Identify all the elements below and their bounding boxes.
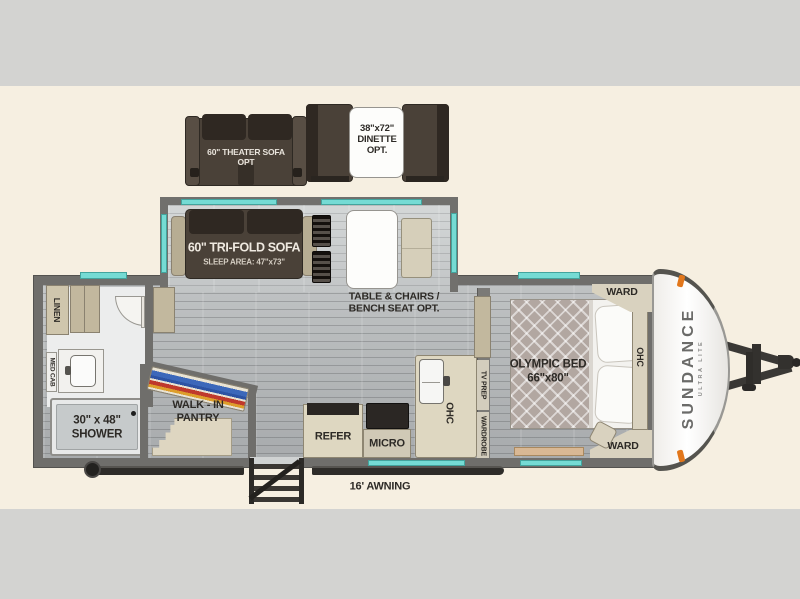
slide-bench-divider (402, 248, 431, 249)
slide-window-top-left (181, 199, 277, 205)
bedroom-ohc-cabinet (632, 306, 648, 430)
hitch-crossmember (752, 344, 761, 384)
theater-sofa-cupholder-left (190, 168, 199, 177)
floorplan-canvas: 60" THEATER SOFA OPT 38"x72" DINETTE OPT… (0, 0, 800, 599)
theater-sofa-console (238, 164, 254, 185)
slide-window-right (451, 213, 457, 273)
brand-name: SUNDANCE (680, 307, 698, 430)
trifold-arm-left (171, 216, 186, 276)
ward-bottom-label: WARD (607, 440, 638, 452)
theater-sofa-headrest-right (248, 114, 292, 140)
bed-label: OLYMPIC BED 66"x80" (510, 358, 587, 385)
pantry-wall-right (248, 388, 256, 458)
awning-bar-left (90, 466, 244, 475)
brand-logo: SUNDANCE ULTRA LITE (680, 307, 704, 430)
kitchen-faucet (443, 376, 450, 386)
micro-label: MICRO (369, 438, 405, 451)
slide-chair-top (312, 215, 331, 247)
shower-head-dot (131, 411, 136, 416)
kitchen-sink-divider (422, 382, 440, 384)
hitch-coupler-tip (792, 358, 800, 367)
kitchen-sink (419, 359, 444, 404)
slide-window-top-right (321, 199, 422, 205)
window-bedroom-top (518, 272, 580, 279)
window-top-left (80, 272, 127, 279)
bathroom-faucet (65, 366, 71, 375)
partition-cabinet (474, 296, 491, 358)
theater-sofa-label: 60" THEATER SOFA OPT (207, 147, 285, 167)
slide-chair-bottom (312, 251, 331, 283)
linen-label: LINEN (52, 298, 62, 323)
slide-window-left (161, 214, 167, 273)
bed-foot-shelf (514, 447, 584, 456)
bottom-gray-band (0, 509, 800, 599)
bathroom-sink (70, 355, 96, 387)
dinette-bench-right-base (406, 176, 444, 182)
shower-label: 30" x 48" SHOWER (72, 414, 123, 441)
table-chairs-label: TABLE & CHAIRS / BENCH SEAT OPT. (349, 291, 440, 316)
hitch-jack-foot (742, 384, 756, 391)
hitch-jack (746, 352, 753, 386)
slide-bench-seat (401, 218, 432, 278)
pantry-label: WALK - IN PANTRY (172, 399, 223, 425)
dinette-bench-left-base (311, 176, 349, 182)
hall-cabinet (153, 287, 175, 333)
dinette-bench-left-back (306, 104, 318, 182)
bathroom-cabinet (70, 285, 100, 333)
window-bottom-bedroom (520, 460, 582, 466)
trifold-label-line1: 60" TRI-FOLD SOFA (188, 241, 300, 256)
step-tread-4 (254, 497, 299, 502)
slide-table (346, 210, 398, 289)
top-gray-band (0, 0, 800, 86)
bed-fold-line (589, 300, 593, 428)
ohc-kitchen-label: OHC (444, 402, 455, 424)
ohc-bedroom-label: OHC (635, 347, 645, 366)
trifold-back-right (247, 210, 302, 234)
awning-end-cap (84, 461, 101, 478)
ward-top-label: WARD (606, 286, 637, 298)
cooktop (366, 403, 409, 429)
theater-sofa-cupholder-right (293, 168, 302, 177)
step-rail-right (299, 458, 304, 504)
theater-sofa-headrest-left (202, 114, 246, 140)
dinette-label: 38"x72" DINETTE OPT. (357, 123, 396, 157)
wardrobe-label: WARDROBE (480, 416, 487, 456)
refrigerator-top (307, 403, 359, 415)
trifold-label-line2: SLEEP AREA: 47"x73" (203, 257, 285, 266)
pantry-wall-left (140, 364, 148, 458)
refer-label: REFER (315, 431, 351, 444)
dinette-bench-right-back (437, 104, 449, 182)
tv-prep-label: TV PREP (480, 371, 487, 400)
brand-subtitle: ULTRA LITE (698, 307, 704, 430)
awning-label: 16' AWNING (350, 481, 411, 494)
med-cab-label: MED CAB (49, 358, 56, 387)
trifold-back-left (189, 210, 244, 234)
awning-bar-right (312, 466, 504, 475)
